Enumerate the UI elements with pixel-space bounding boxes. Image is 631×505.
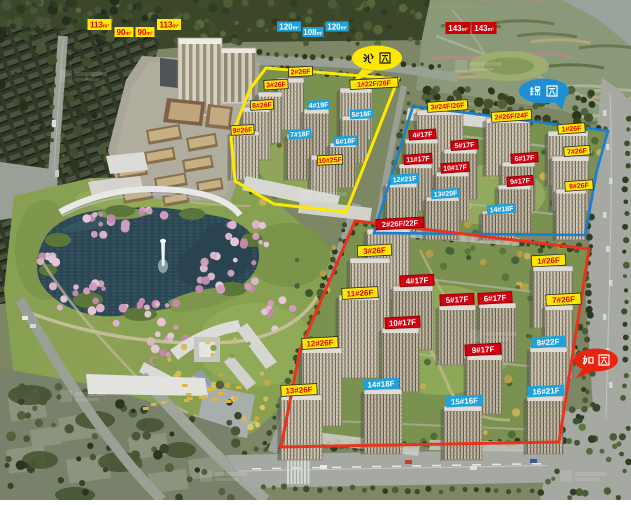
svg-text:4#17F: 4#17F bbox=[412, 131, 433, 139]
svg-text:5#17F: 5#17F bbox=[445, 295, 468, 305]
svg-text:2#26F: 2#26F bbox=[290, 68, 311, 76]
svg-text:3#26F: 3#26F bbox=[363, 246, 386, 256]
svg-text:9#17F: 9#17F bbox=[471, 345, 494, 355]
svg-text:12#26F: 12#26F bbox=[306, 338, 334, 348]
svg-text:9#26F: 9#26F bbox=[232, 127, 253, 135]
svg-text:2#26F/22F: 2#26F/22F bbox=[382, 218, 419, 229]
svg-text:4#17F: 4#17F bbox=[405, 276, 428, 286]
svg-text:16#21F: 16#21F bbox=[532, 386, 560, 396]
svg-text:7#18F: 7#18F bbox=[290, 131, 311, 139]
svg-text:10#17F: 10#17F bbox=[389, 318, 417, 328]
svg-text:8#26F: 8#26F bbox=[252, 102, 273, 110]
svg-text:3#26F: 3#26F bbox=[266, 81, 287, 89]
svg-text:10#25F: 10#25F bbox=[318, 157, 343, 165]
svg-text:6#17F: 6#17F bbox=[514, 155, 535, 163]
svg-text:11#26F: 11#26F bbox=[346, 288, 373, 298]
svg-text:8#26F: 8#26F bbox=[569, 182, 590, 190]
svg-text:7#26F: 7#26F bbox=[567, 148, 588, 156]
svg-text:1#26F: 1#26F bbox=[537, 256, 560, 266]
svg-text:9#17F: 9#17F bbox=[510, 178, 531, 186]
svg-text:15#16F: 15#16F bbox=[451, 396, 479, 406]
svg-text:1#26F: 1#26F bbox=[561, 125, 582, 133]
svg-text:13#26F: 13#26F bbox=[285, 385, 313, 395]
svg-text:6#18F: 6#18F bbox=[335, 138, 356, 146]
svg-text:5#18F: 5#18F bbox=[351, 111, 372, 119]
svg-text:5#17F: 5#17F bbox=[454, 142, 475, 150]
svg-text:14#18F: 14#18F bbox=[367, 379, 395, 389]
svg-text:7#26F: 7#26F bbox=[552, 295, 575, 305]
svg-text:6#17F: 6#17F bbox=[483, 293, 506, 303]
svg-text:4#19F: 4#19F bbox=[308, 102, 329, 110]
svg-text:8#22F: 8#22F bbox=[536, 337, 559, 347]
